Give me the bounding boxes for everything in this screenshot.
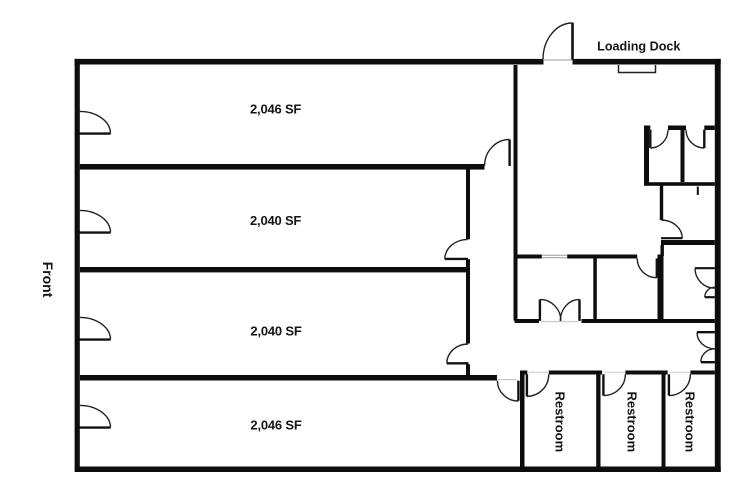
svg-text:Restroom: Restroom	[553, 391, 568, 452]
svg-text:Loading Dock: Loading Dock	[597, 39, 681, 53]
svg-text:Restroom: Restroom	[683, 391, 698, 452]
svg-text:2,040 SF: 2,040 SF	[250, 213, 301, 228]
svg-text:Front: Front	[40, 262, 56, 298]
svg-text:2,040 SF: 2,040 SF	[250, 323, 301, 338]
svg-text:2,046 SF: 2,046 SF	[250, 418, 301, 433]
svg-text:2,046 SF: 2,046 SF	[250, 101, 301, 116]
svg-text:Restroom: Restroom	[625, 391, 640, 452]
